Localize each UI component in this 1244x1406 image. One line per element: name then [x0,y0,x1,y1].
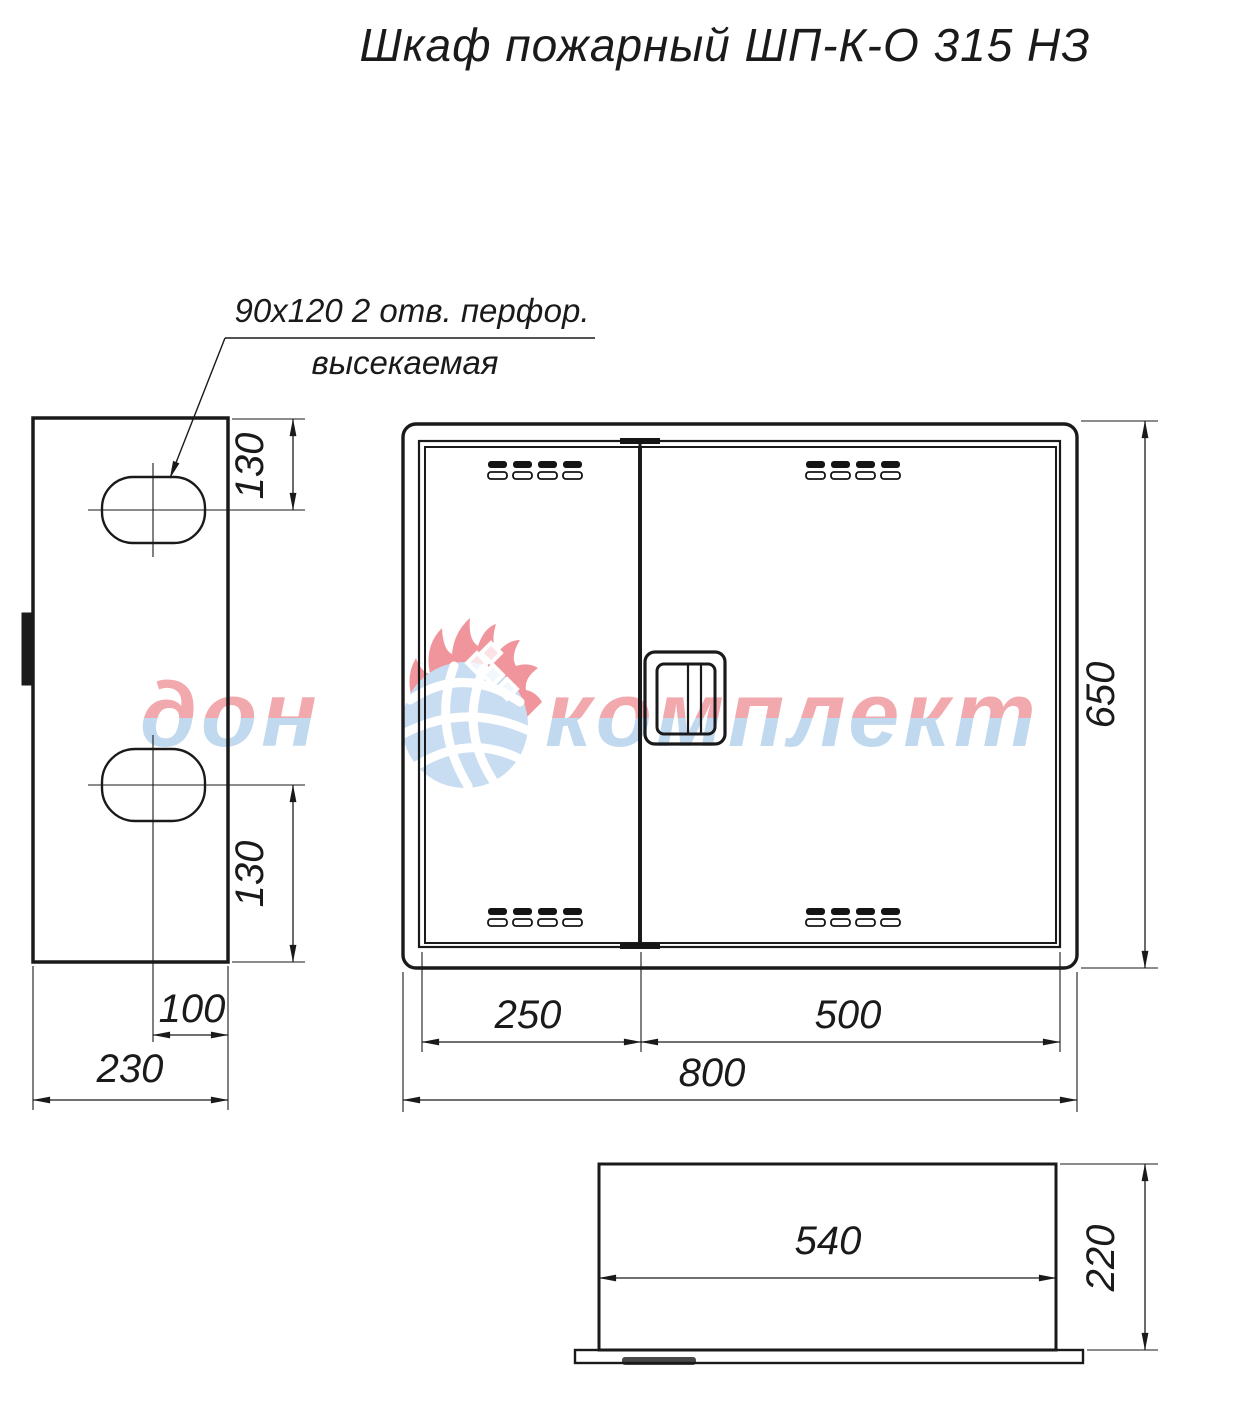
dim-width: 800 [679,1051,746,1095]
dim-hole-center: 100 [159,987,226,1031]
vent-slots [488,461,900,926]
annotation-line1: 90x120 2 отв. перфор. [234,292,589,329]
cabinet-inner-frame [419,441,1060,947]
flange-detail [622,1357,696,1365]
latch-top [620,438,660,444]
dim-left-door: 250 [494,993,562,1037]
drawing-sheet: Шкаф пожарный ШП-К-О 315 НЗ дон комплект [0,0,1244,1406]
cabinet-outer-frame [403,424,1077,968]
dim-hole-bottom: 130 [228,841,272,908]
left-door [425,447,639,943]
dim-inner-width: 540 [795,1219,862,1263]
drawing-title: Шкаф пожарный ШП-К-О 315 НЗ [320,18,1130,72]
bottom-view [575,1164,1158,1365]
dim-height: 650 [1079,662,1123,729]
dim-right-door: 500 [815,993,882,1037]
wall-bracket [22,613,32,685]
latch-bottom [620,943,660,949]
annotation-line2: высекаемая [312,344,499,381]
door-handle [645,652,725,744]
dim-bottom-depth: 220 [1079,1225,1123,1293]
right-door [641,447,1056,943]
dimension-lines [599,1164,1145,1350]
dim-side-depth: 230 [96,1047,164,1091]
dim-hole-top: 130 [228,433,272,500]
technical-drawing: 130 130 100 230 90x120 2 отв. перфор. вы… [0,0,1244,1406]
